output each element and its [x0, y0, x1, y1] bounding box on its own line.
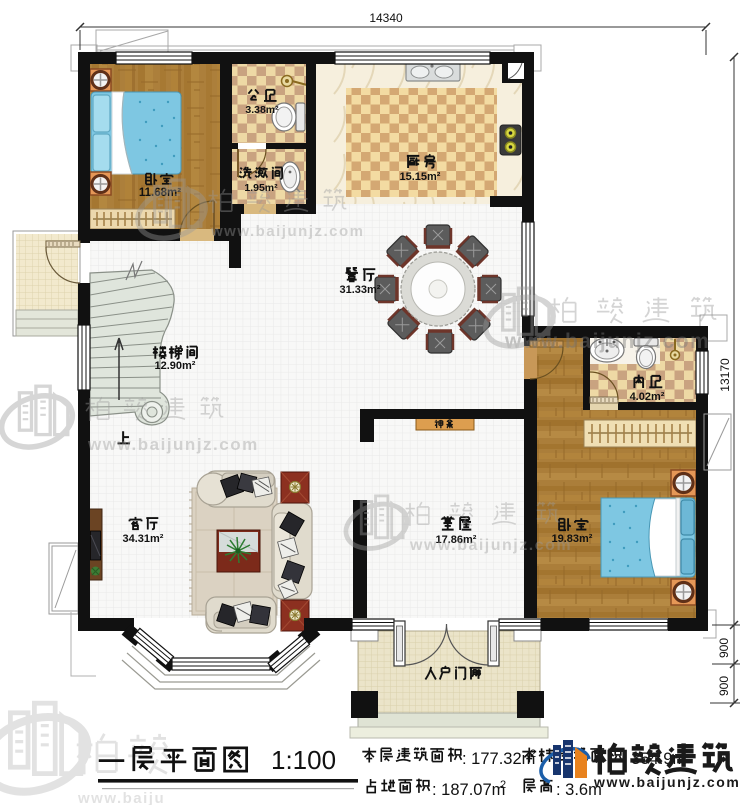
- svg-text:2: 2: [500, 779, 506, 791]
- svg-text:www.baijunjz.com: www.baijunjz.com: [504, 330, 710, 353]
- svg-text:www.baijunjz.com: www.baijunjz.com: [210, 223, 364, 240]
- svg-text:4.02m²: 4.02m²: [630, 391, 665, 403]
- svg-text:1:100: 1:100: [271, 745, 336, 775]
- svg-text:13170: 13170: [718, 358, 732, 392]
- svg-text:900: 900: [717, 676, 731, 696]
- svg-text:www.baijunjz.com: www.baijunjz.com: [593, 774, 740, 790]
- svg-text:www.baijunjz.com: www.baijunjz.com: [409, 537, 572, 554]
- svg-text:: 177.32m: : 177.32m: [462, 750, 535, 768]
- svg-text:34.31m²: 34.31m²: [123, 533, 164, 545]
- svg-text:3.38m²: 3.38m²: [245, 104, 279, 116]
- svg-text:: 187.07m: : 187.07m: [432, 781, 505, 799]
- svg-text:15.15m²: 15.15m²: [400, 171, 441, 183]
- svg-text:www.baiju: www.baiju: [77, 790, 165, 805]
- svg-text:12.90m²: 12.90m²: [155, 360, 196, 372]
- svg-text:31.33m²: 31.33m²: [340, 284, 381, 296]
- svg-text:14340: 14340: [369, 11, 403, 25]
- svg-text:900: 900: [717, 638, 731, 658]
- svg-text:www.baijunjz.com: www.baijunjz.com: [87, 435, 259, 454]
